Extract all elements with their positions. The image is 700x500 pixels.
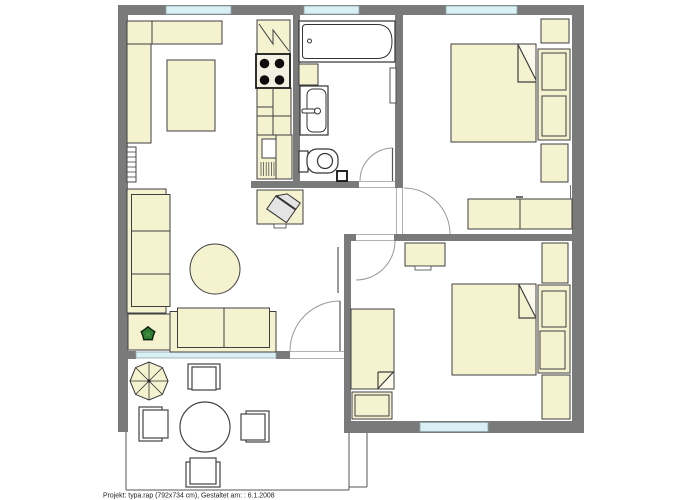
svg-text:Projekt: typa.rap (792x734 cm): Projekt: typa.rap (792x734 cm), Gestalte… xyxy=(103,493,275,500)
